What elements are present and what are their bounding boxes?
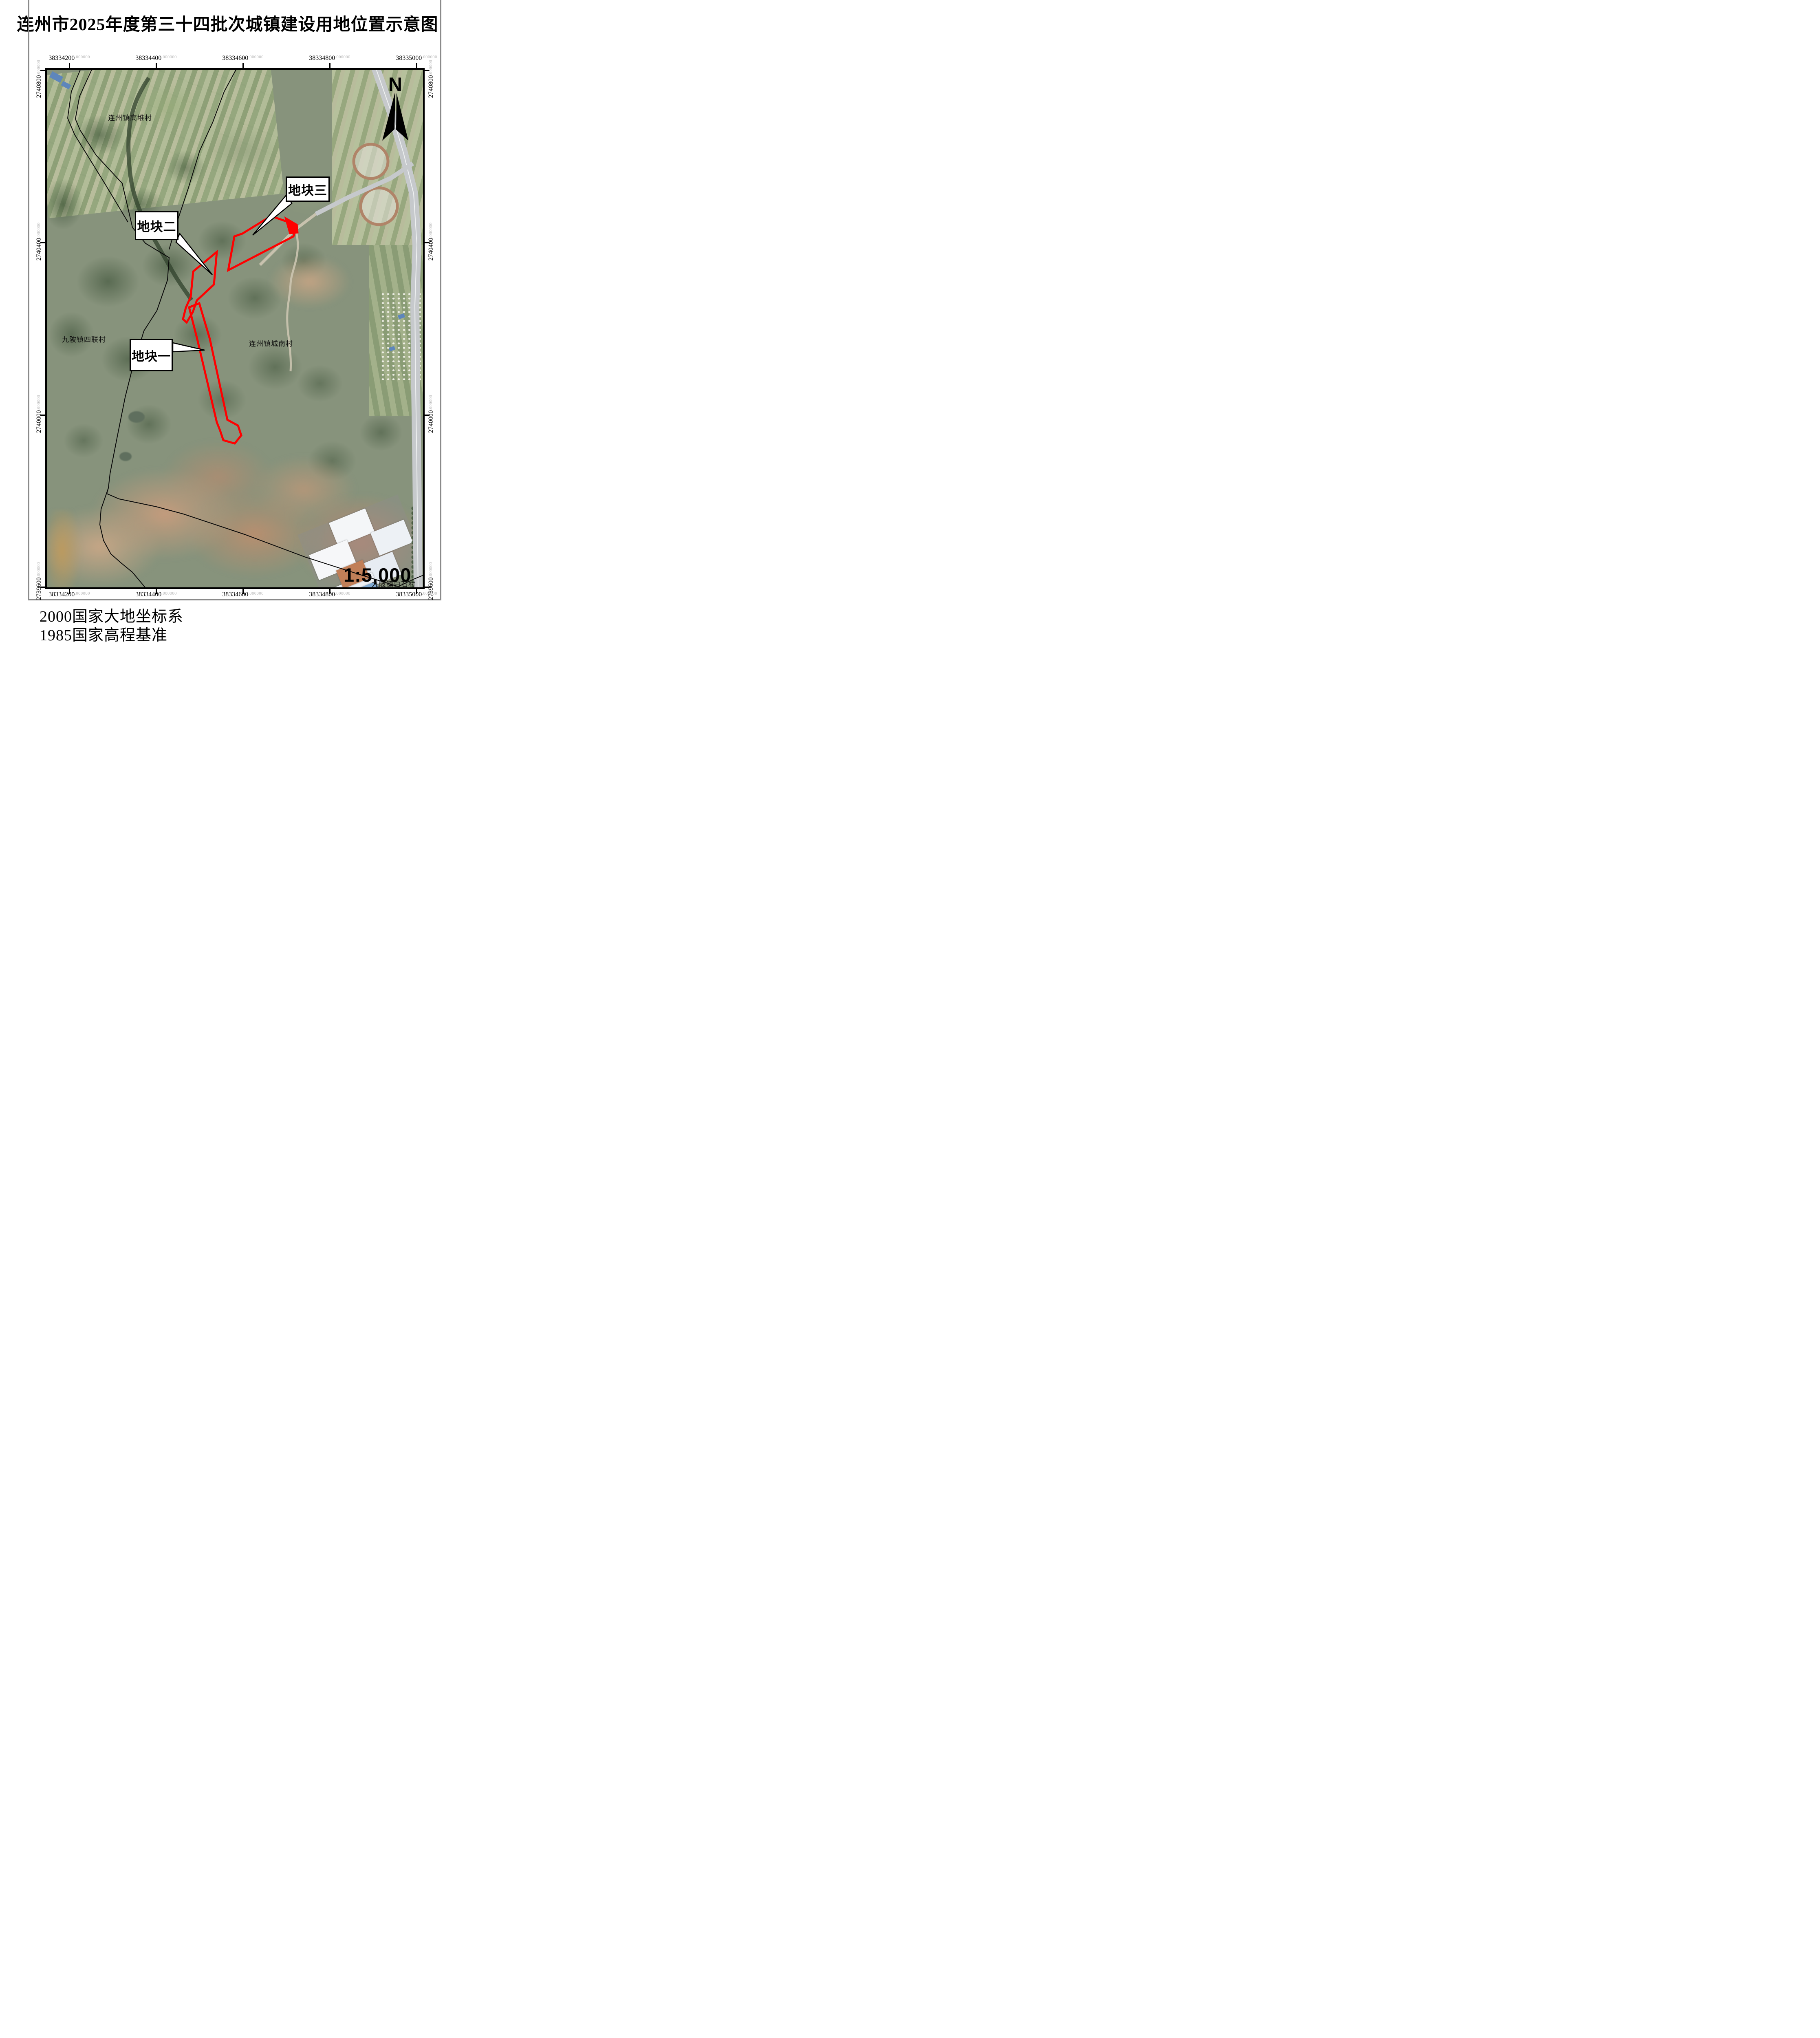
coordinate-value: 38334800 — [309, 591, 335, 598]
coordinate-fraction: .000000 — [335, 591, 350, 596]
village-label-chengnan: 连州镇城南村 — [249, 338, 293, 348]
coordinate-fraction: .000000 — [429, 562, 433, 578]
coordinate-fraction: .000000 — [248, 591, 264, 596]
parcel-one-label: 地块一 — [132, 346, 171, 364]
coordinate-value: 2740400 — [427, 238, 434, 260]
north-label: N — [386, 73, 405, 95]
coordinate-value: 38334200 — [48, 591, 75, 598]
village-label-silian: 九陂镇四联村 — [62, 334, 106, 344]
coordinate-value: 38334600 — [222, 55, 248, 62]
coordinate-value: 38335000 — [396, 591, 422, 598]
grid-coordinate-right: 2739600.000000 — [428, 562, 434, 602]
page-title: 连州市2025年度第三十四批次城镇建设用地位置示意图 — [0, 11, 455, 35]
parcel-three-label: 地块三 — [288, 180, 327, 199]
callout-parcel-two: 地块二 — [135, 211, 178, 240]
coordinate-value: 2739600 — [427, 577, 434, 600]
scale-text: 1:5,000 — [344, 564, 411, 586]
coordinate-fraction: .000000 — [429, 60, 433, 75]
coordinate-fraction: .000000 — [37, 60, 41, 75]
village-label-gaodui: 连州镇高堆村 — [108, 112, 152, 122]
height-datum-note: 1985国家高程基准 — [40, 622, 167, 643]
grid-coordinate-left: 2740800.000000 — [36, 60, 42, 100]
coordinate-value: 2739600 — [35, 577, 42, 600]
parcel-two-label: 地块二 — [137, 216, 176, 235]
coordinate-value: 2740800 — [35, 75, 42, 98]
page: 连州市2025年度第三十四批次城镇建设用地位置示意图 — [0, 0, 455, 643]
grid-coordinate-right: 2740400.000000 — [428, 223, 434, 263]
coordinate-value: 38334600 — [222, 591, 248, 598]
coordinate-fraction: .000000 — [429, 223, 433, 238]
coordinate-fraction: .000000 — [37, 395, 41, 410]
coordinate-fraction: .000000 — [75, 591, 90, 596]
parcel-one-outline — [189, 303, 241, 443]
grid-tick-top — [416, 63, 417, 68]
coordinate-fraction: .000000 — [37, 562, 41, 578]
page-border-right — [440, 0, 441, 600]
map-viewport: 连州镇高堆村 九陂镇四联村 连州镇城南村 九陂镇白石村 地块一 地块二 地块三 … — [45, 68, 425, 589]
coordinate-value: 2740000 — [35, 410, 42, 433]
coordinate-fraction: .000000 — [161, 591, 177, 596]
grid-coordinate-top: 38334200.000000 — [48, 55, 90, 62]
coordinate-fraction: .000000 — [37, 223, 41, 238]
coordinate-value: 38335000 — [396, 55, 422, 62]
boundary-line-north — [169, 70, 236, 249]
boundary-line-northwest-a — [68, 70, 128, 222]
grid-coordinate-left: 2740000.000000 — [36, 395, 42, 435]
grid-coordinate-right: 2740000.000000 — [428, 395, 434, 435]
grid-coordinate-bottom: 38334800.000000 — [309, 591, 350, 598]
coordinate-fraction: .000000 — [75, 55, 90, 60]
grid-tick-top — [329, 63, 331, 68]
page-border-left — [28, 0, 29, 600]
coordinate-fraction: .000000 — [248, 55, 264, 60]
boundary-line-northwest-b — [75, 70, 132, 227]
coordinate-fraction: .000000 — [422, 55, 437, 60]
coordinate-value: 38334400 — [135, 591, 161, 598]
grid-coordinate-bottom: 38334400.000000 — [135, 591, 177, 598]
callout-parcel-one: 地块一 — [130, 339, 173, 371]
grid-coordinate-top: 38334400.000000 — [135, 55, 177, 62]
page-border-bottom — [28, 599, 441, 600]
grid-coordinate-left: 2739600.000000 — [36, 562, 42, 602]
coordinate-value: 2740000 — [427, 410, 434, 433]
callout-parcel-three: 地块三 — [286, 176, 330, 202]
coordinate-value: 38334200 — [48, 55, 75, 62]
stream-treeline — [128, 78, 192, 300]
coordinate-value: 38334400 — [135, 55, 161, 62]
interchange-loop-north — [354, 144, 388, 179]
grid-coordinate-bottom: 38334600.000000 — [222, 591, 264, 598]
dirt-track-south — [287, 232, 298, 371]
interchange-loop-south — [361, 188, 397, 225]
parcel-three-road-blob — [285, 218, 298, 234]
grid-coordinate-top: 38334800.000000 — [309, 55, 350, 62]
coordinate-fraction: .000000 — [429, 395, 433, 410]
coordinate-fraction: .000000 — [335, 55, 350, 60]
grid-tick-top — [156, 63, 157, 68]
grid-coordinate-bottom: 38334200.000000 — [48, 591, 90, 598]
coordinate-value: 2740800 — [427, 75, 434, 98]
coordinate-fraction: .000000 — [161, 55, 177, 60]
map-overlay — [47, 70, 423, 587]
grid-coordinate-left: 2740400.000000 — [36, 223, 42, 263]
coordinate-value: 38334800 — [309, 55, 335, 62]
coordinate-value: 2740400 — [35, 238, 42, 260]
grid-tick-top — [242, 63, 244, 68]
grid-coordinate-top: 38334600.000000 — [222, 55, 264, 62]
grid-coordinate-right: 2740800.000000 — [428, 60, 434, 100]
grid-tick-top — [69, 63, 70, 68]
callout-leader-parcel-two — [176, 234, 212, 275]
